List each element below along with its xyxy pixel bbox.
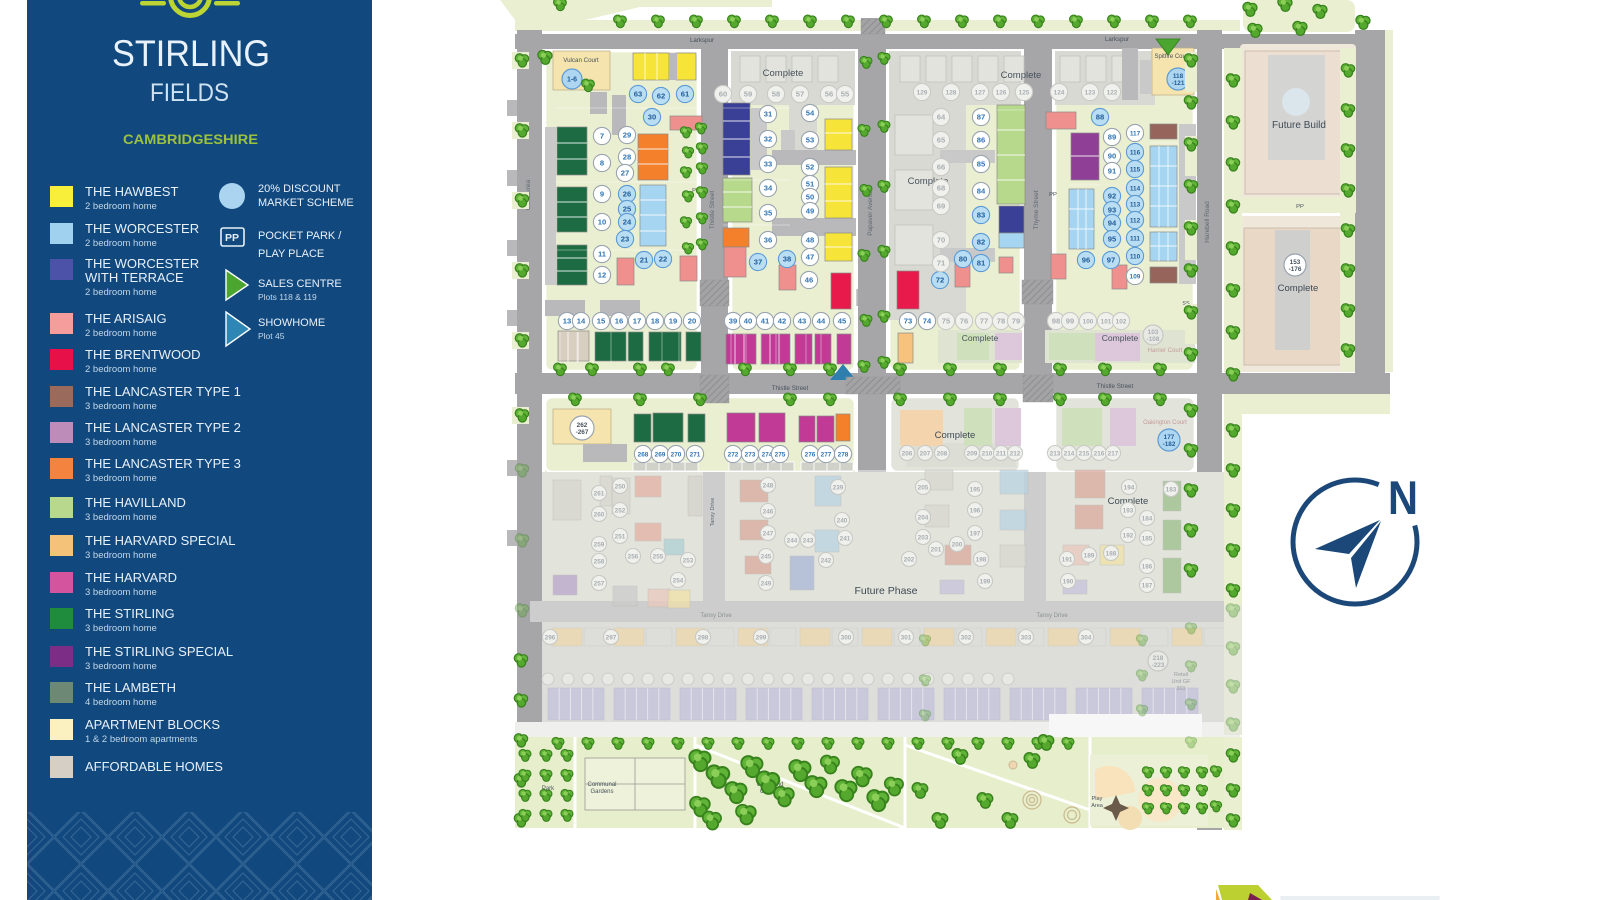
svg-text:59: 59 [744,89,752,98]
svg-text:Complete: Complete [1102,333,1139,343]
svg-text:187: 187 [1142,582,1153,589]
svg-text:69: 69 [937,201,945,210]
svg-text:198: 198 [976,556,987,563]
svg-text:126: 126 [996,89,1007,96]
svg-text:91: 91 [1108,166,1117,175]
svg-text:74: 74 [923,316,932,325]
svg-text:49: 49 [806,206,814,215]
svg-text:50: 50 [806,192,814,201]
svg-text:113: 113 [1130,201,1141,208]
svg-text:64: 64 [937,112,946,121]
svg-text:205: 205 [918,484,929,491]
svg-text:243: 243 [803,537,814,544]
svg-text:Thistle Street: Thistle Street [1097,383,1134,390]
svg-text:MARKET SCHEME: MARKET SCHEME [258,197,354,209]
svg-text:1-6: 1-6 [567,77,577,84]
svg-text:2 bedroom home: 2 bedroom home [85,328,157,339]
svg-text:303: 303 [1021,634,1032,641]
svg-text:217: 217 [1108,450,1119,457]
svg-text:20: 20 [688,316,696,325]
svg-text:Gardens: Gardens [590,789,613,795]
svg-text:213: 213 [1050,450,1061,457]
svg-text:3 bedroom home: 3 bedroom home [85,587,157,598]
svg-text:191: 191 [1062,556,1073,563]
svg-text:Future Build: Future Build [1272,120,1326,131]
svg-text:208: 208 [937,450,948,457]
svg-text:Tansy Drive: Tansy Drive [1036,613,1068,619]
svg-text:197: 197 [970,530,981,537]
svg-text:81: 81 [977,258,986,267]
svg-text:239: 239 [833,484,844,491]
svg-text:THE HARVARD SPECIAL: THE HARVARD SPECIAL [85,533,236,548]
svg-text:35: 35 [764,208,773,217]
svg-text:THE ARISAIG: THE ARISAIG [85,311,167,326]
svg-text:304: 304 [1081,634,1092,641]
svg-text:211: 211 [996,450,1007,457]
svg-text:44: 44 [817,316,826,325]
svg-text:7: 7 [600,131,604,140]
svg-text:90: 90 [1108,151,1116,160]
svg-text:296: 296 [545,634,556,641]
svg-text:14: 14 [577,316,586,325]
svg-text:94: 94 [1108,218,1117,227]
svg-text:251: 251 [615,533,626,540]
svg-text:261: 261 [594,490,605,497]
svg-text:POCKET PARK /: POCKET PARK / [258,230,342,242]
svg-text:277: 277 [821,451,832,458]
svg-text:85: 85 [977,159,986,168]
svg-text:Complete: Complete [763,68,804,79]
svg-text:Thistle Street: Thistle Street [709,191,716,229]
svg-text:245: 245 [761,553,772,560]
svg-text:43: 43 [798,316,806,325]
svg-text:38: 38 [783,254,791,263]
svg-text:210: 210 [982,450,993,457]
svg-text:242: 242 [821,557,832,564]
svg-text:128: 128 [946,89,957,96]
svg-text:61: 61 [681,89,690,98]
svg-text:3 bedroom home: 3 bedroom home [85,437,157,448]
svg-text:302: 302 [961,634,972,641]
svg-text:301: 301 [901,634,912,641]
svg-text:45: 45 [838,316,847,325]
svg-text:190: 190 [1063,578,1074,585]
svg-text:117: 117 [1130,130,1141,137]
svg-text:272: 272 [728,451,739,458]
svg-text:Tansy Drive: Tansy Drive [710,498,716,527]
svg-text:253: 253 [683,557,694,564]
svg-text:184: 184 [1142,515,1153,522]
svg-text:THE WORCESTER: THE WORCESTER [85,221,199,236]
svg-text:86: 86 [977,135,985,144]
svg-text:298: 298 [698,634,709,641]
svg-text:46: 46 [805,275,813,284]
svg-text:252: 252 [615,507,626,514]
svg-text:216: 216 [1094,450,1105,457]
svg-text:Complete: Complete [962,333,999,343]
svg-text:109: 109 [1130,273,1141,280]
svg-text:Complete: Complete [935,430,976,441]
svg-text:68: 68 [937,183,945,192]
svg-text:88: 88 [1096,112,1104,121]
svg-text:30: 30 [648,112,656,121]
svg-text:214: 214 [1064,450,1075,457]
svg-text:206: 206 [902,450,913,457]
svg-text:129: 129 [917,89,928,96]
svg-text:78: 78 [997,316,1005,325]
svg-text:Larkspur: Larkspur [690,37,714,44]
svg-text:247: 247 [763,530,774,537]
svg-text:Complete: Complete [1278,283,1319,294]
svg-text:N: N [1388,471,1418,524]
svg-text:256: 256 [628,553,639,560]
svg-text:37: 37 [754,257,762,266]
svg-text:STIRLING: STIRLING [112,33,270,74]
svg-text:89: 89 [1108,132,1116,141]
svg-text:244: 244 [787,537,798,544]
svg-text:65: 65 [937,135,946,144]
svg-text:200: 200 [952,541,963,548]
svg-text:33: 33 [764,159,772,168]
svg-text:21: 21 [640,255,649,264]
svg-text:Thistle Street: Thistle Street [772,385,809,392]
svg-text:3 bedroom home: 3 bedroom home [85,550,157,561]
svg-text:THE HAWBEST: THE HAWBEST [85,184,178,199]
svg-text:3 bedroom home: 3 bedroom home [85,512,157,523]
svg-text:12: 12 [598,270,606,279]
svg-text:114: 114 [1130,185,1141,192]
svg-text:194: 194 [1124,484,1135,491]
svg-text:Area: Area [1091,803,1104,809]
svg-text:98: 98 [1052,316,1060,325]
svg-text:188: 188 [1106,550,1117,557]
svg-text:193: 193 [1123,507,1134,514]
svg-text:299: 299 [756,634,767,641]
svg-text:16: 16 [615,316,623,325]
svg-text:199: 199 [980,578,991,585]
svg-text:275: 275 [775,451,786,458]
svg-text:87: 87 [977,112,985,121]
svg-text:240: 240 [837,517,848,524]
svg-text:115: 115 [1130,166,1141,173]
svg-text:271: 271 [690,451,701,458]
svg-text:70: 70 [937,235,945,244]
svg-text:53: 53 [806,135,814,144]
svg-text:56: 56 [825,89,833,98]
svg-text:Tansy Drive: Tansy Drive [700,613,732,619]
svg-text:196: 196 [970,507,981,514]
svg-text:Communal: Communal [587,782,616,788]
svg-text:111: 111 [1130,235,1140,242]
svg-text:42: 42 [778,316,786,325]
svg-text:28: 28 [623,152,631,161]
svg-text:THE LANCASTER TYPE 2: THE LANCASTER TYPE 2 [85,420,241,435]
svg-text:23: 23 [621,234,629,243]
svg-text:PP: PP [225,232,239,244]
svg-text:Complete: Complete [1001,70,1042,81]
svg-text:202: 202 [904,556,915,563]
svg-text:15: 15 [597,316,606,325]
svg-text:2 bedroom home: 2 bedroom home [85,201,157,212]
svg-text:258: 258 [594,558,605,565]
svg-text:17: 17 [633,316,641,325]
svg-text:36: 36 [764,235,772,244]
svg-text:Plots 118 & 119: Plots 118 & 119 [258,292,317,302]
svg-text:54: 54 [806,108,815,117]
svg-text:40: 40 [744,316,752,325]
svg-text:195: 195 [970,486,981,493]
svg-text:FIELDS: FIELDS [150,79,229,107]
svg-text:110: 110 [1130,253,1141,260]
svg-text:APARTMENT BLOCKS: APARTMENT BLOCKS [85,717,220,732]
svg-text:55: 55 [841,89,850,98]
svg-text:246: 246 [763,508,774,515]
svg-text:297: 297 [606,634,617,641]
svg-text:20% DISCOUNT: 20% DISCOUNT [258,183,341,195]
svg-text:THE LANCASTER TYPE 1: THE LANCASTER TYPE 1 [85,384,241,399]
svg-text:19: 19 [669,316,677,325]
svg-text:AFFORDABLE HOMES: AFFORDABLE HOMES [85,759,223,774]
svg-text:WITH TERRACE: WITH TERRACE [85,270,184,285]
svg-text:3 bedroom home: 3 bedroom home [85,401,157,412]
svg-text:73: 73 [904,316,912,325]
svg-text:THE HAVILLAND: THE HAVILLAND [85,495,186,510]
svg-text:71: 71 [937,258,946,267]
svg-text:79: 79 [1012,316,1020,325]
svg-text:60: 60 [719,89,727,98]
svg-text:Unit GF: Unit GF [1172,679,1192,685]
svg-text:204: 204 [918,514,929,521]
svg-text:270: 270 [671,451,682,458]
svg-text:269: 269 [655,451,666,458]
svg-text:189: 189 [1084,552,1095,559]
svg-text:2 bedroom home: 2 bedroom home [85,238,157,249]
svg-text:207: 207 [920,450,931,457]
svg-text:101: 101 [1101,318,1112,325]
svg-text:24: 24 [623,217,632,226]
svg-text:83: 83 [977,210,985,219]
svg-text:100: 100 [1083,318,1094,325]
svg-text:122: 122 [1107,89,1118,96]
svg-text:80: 80 [959,254,967,263]
svg-text:1 & 2 bedroom apartments: 1 & 2 bedroom apartments [85,734,198,745]
svg-text:186: 186 [1142,563,1153,570]
svg-text:203: 203 [918,534,929,541]
svg-text:THE BRENTWOOD: THE BRENTWOOD [85,347,201,362]
svg-text:63: 63 [634,89,642,98]
svg-text:125: 125 [1019,89,1030,96]
svg-text:52: 52 [806,162,814,171]
svg-text:22: 22 [659,254,667,263]
svg-text:276: 276 [805,451,816,458]
svg-text:51: 51 [806,179,815,188]
svg-text:39: 39 [729,316,737,325]
svg-text:Vulcan Court: Vulcan Court [563,57,599,64]
svg-text:209: 209 [967,450,978,457]
svg-text:-176: -176 [1289,266,1302,273]
svg-text:215: 215 [1079,450,1090,457]
svg-text:58: 58 [772,89,780,98]
svg-text:CAMBRIDGESHIRE: CAMBRIDGESHIRE [123,132,258,147]
svg-text:2 bedroom home: 2 bedroom home [85,364,157,375]
svg-text:29: 29 [623,130,631,139]
svg-text:SALES CENTRE: SALES CENTRE [258,278,342,290]
svg-text:254: 254 [673,577,684,584]
svg-text:18: 18 [651,316,659,325]
svg-text:2 bedroom home: 2 bedroom home [85,287,157,298]
svg-text:41: 41 [761,316,770,325]
svg-text:Oakington Court: Oakington Court [1143,420,1187,426]
svg-text:31: 31 [764,109,773,118]
svg-text:62: 62 [657,91,665,100]
svg-text:Harrier Court: Harrier Court [1148,348,1183,354]
svg-text:84: 84 [977,186,986,195]
svg-text:34: 34 [764,183,773,192]
svg-text:THE HARVARD: THE HARVARD [85,570,177,585]
svg-text:SHOWHOME: SHOWHOME [258,317,325,329]
svg-text:26: 26 [623,189,631,198]
svg-text:268: 268 [638,451,649,458]
svg-text:212: 212 [1010,450,1021,457]
svg-text:11: 11 [598,249,607,258]
svg-text:93: 93 [1108,205,1116,214]
svg-text:4 bedroom home: 4 bedroom home [85,697,157,708]
svg-text:Play: Play [1092,796,1103,802]
svg-text:249: 249 [761,580,772,587]
svg-text:99: 99 [1066,316,1074,325]
svg-text:192: 192 [1123,532,1134,539]
svg-text:Retail: Retail [1174,672,1188,678]
svg-text:10: 10 [598,217,606,226]
svg-text:9: 9 [600,189,604,198]
svg-text:127: 127 [975,89,986,96]
svg-text:241: 241 [840,535,851,542]
svg-text:116: 116 [1130,149,1141,156]
svg-text:95: 95 [1108,234,1117,243]
svg-text:-267: -267 [576,429,589,436]
svg-text:75: 75 [942,316,951,325]
svg-text:97: 97 [1107,255,1115,264]
svg-text:76: 76 [960,316,968,325]
svg-text:47: 47 [806,252,814,261]
svg-text:112: 112 [1130,217,1141,224]
svg-text:Plot 45: Plot 45 [258,331,285,341]
svg-text:THE LAMBETH: THE LAMBETH [85,680,176,695]
svg-text:PLAY PLACE: PLAY PLACE [258,248,324,260]
svg-text:66: 66 [937,162,945,171]
svg-text:96: 96 [1082,255,1090,264]
svg-text:92: 92 [1108,191,1116,200]
svg-text:248: 248 [763,482,774,489]
svg-text:Future Phase: Future Phase [854,585,917,597]
svg-text:183: 183 [1166,486,1177,493]
svg-text:THE LANCASTER TYPE 3: THE LANCASTER TYPE 3 [85,456,241,471]
svg-text:THE WORCESTER: THE WORCESTER [85,256,199,271]
svg-text:25: 25 [623,204,632,213]
svg-text:Larkspur: Larkspur [1105,36,1129,43]
svg-text:THE STIRLING: THE STIRLING [85,606,175,621]
svg-text:48: 48 [806,235,814,244]
svg-text:27: 27 [621,168,629,177]
svg-text:185: 185 [1142,535,1153,542]
svg-text:32: 32 [764,134,772,143]
svg-text:260: 260 [594,511,605,518]
svg-text:3 bedroom home: 3 bedroom home [85,661,157,672]
svg-text:77: 77 [980,316,988,325]
svg-text:123: 123 [1085,89,1096,96]
svg-text:259: 259 [594,541,605,548]
svg-text:257: 257 [594,580,605,587]
svg-text:THE STIRLING SPECIAL: THE STIRLING SPECIAL [85,644,233,659]
svg-text:Harebell Road: Harebell Road [1204,201,1211,243]
svg-text:PP: PP [1296,204,1304,210]
svg-text:301: 301 [1176,686,1185,692]
svg-text:278: 278 [838,451,849,458]
svg-text:PP: PP [1049,192,1057,198]
svg-text:-108: -108 [1147,336,1160,343]
svg-text:255: 255 [653,553,664,560]
svg-text:13: 13 [563,316,571,325]
svg-text:Thyme Street: Thyme Street [1033,190,1040,229]
svg-text:300: 300 [841,634,852,641]
svg-text:82: 82 [977,237,985,246]
svg-text:72: 72 [936,275,944,284]
svg-text:3 bedroom home: 3 bedroom home [85,623,157,634]
svg-text:201: 201 [931,546,942,553]
svg-text:8: 8 [600,158,604,167]
svg-text:57: 57 [796,89,804,98]
svg-text:273: 273 [745,451,756,458]
svg-text:-182: -182 [1163,441,1176,448]
svg-text:102: 102 [1116,318,1127,325]
svg-text:3 bedroom home: 3 bedroom home [85,473,157,484]
svg-text:-223: -223 [1152,662,1165,669]
svg-text:250: 250 [615,483,626,490]
svg-text:124: 124 [1054,89,1065,96]
svg-text:-121: -121 [1172,80,1185,87]
